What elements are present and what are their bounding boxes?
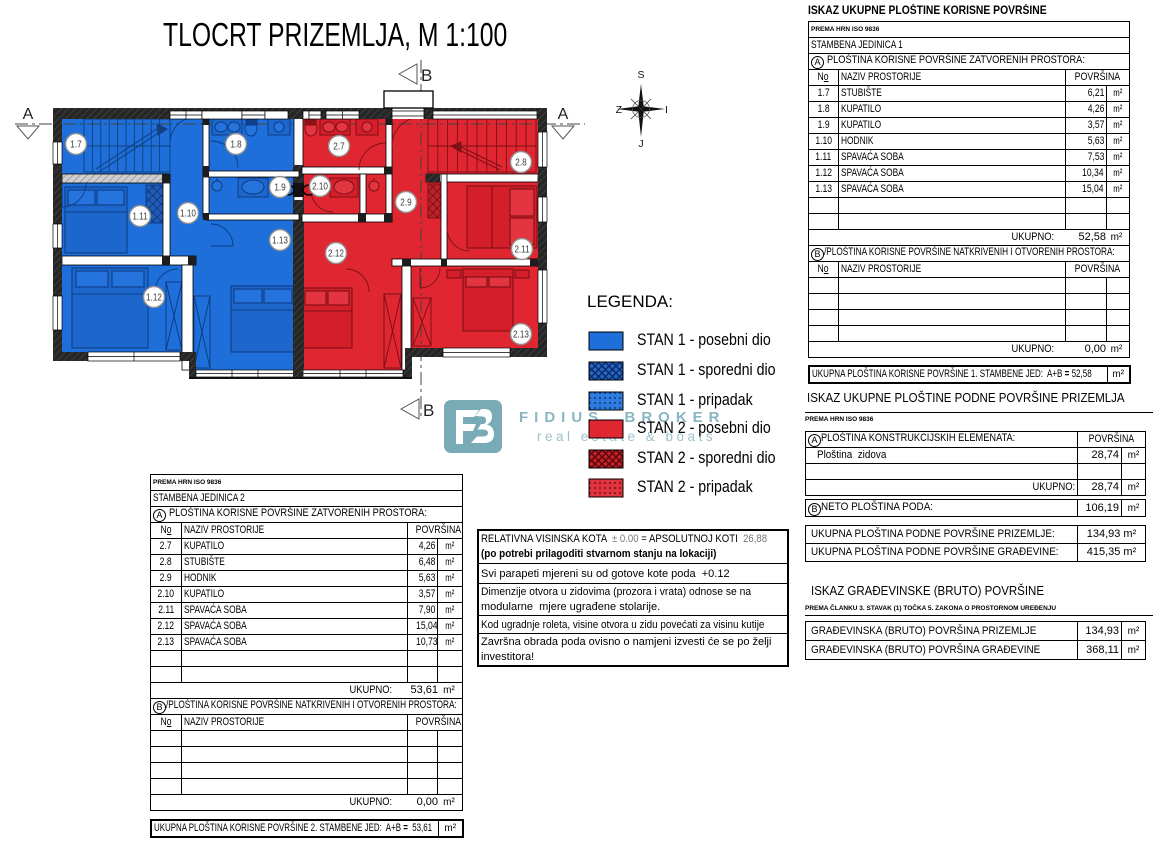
- svg-text:2.11: 2.11: [514, 242, 529, 254]
- svg-text:2.13: 2.13: [513, 327, 529, 339]
- svg-text:1.9: 1.9: [274, 180, 285, 192]
- svg-text:2.8: 2.8: [515, 155, 526, 167]
- svg-text:A: A: [23, 106, 34, 123]
- svg-text:2.9: 2.9: [400, 195, 411, 207]
- svg-text:1.12: 1.12: [146, 290, 162, 302]
- svg-text:1.7: 1.7: [70, 137, 81, 149]
- svg-text:B: B: [421, 66, 432, 85]
- svg-text:1.10: 1.10: [180, 206, 196, 218]
- svg-text:S: S: [637, 69, 644, 81]
- svg-text:2.12: 2.12: [328, 246, 344, 258]
- svg-text:I: I: [665, 104, 668, 116]
- svg-text:2.7: 2.7: [333, 139, 344, 151]
- svg-text:1.8: 1.8: [230, 137, 241, 149]
- svg-text:J: J: [638, 138, 643, 150]
- svg-text:2.10: 2.10: [312, 179, 328, 191]
- svg-text:1.13: 1.13: [272, 233, 288, 245]
- svg-text:1.11: 1.11: [132, 209, 147, 221]
- svg-text:B: B: [423, 401, 434, 420]
- svg-text:A: A: [558, 106, 569, 123]
- svg-text:Z: Z: [616, 104, 623, 116]
